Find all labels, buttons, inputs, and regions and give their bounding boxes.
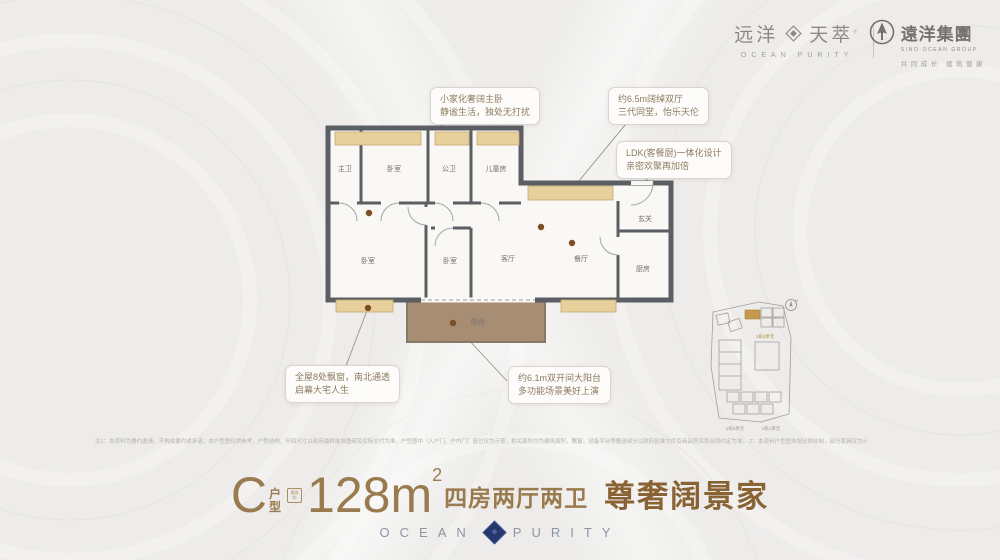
- room-label-foyer: 玄关: [638, 214, 652, 223]
- brand-ocean-purity: 远洋 天萃® OCEAN PURITY: [734, 20, 860, 59]
- keyplan-caption-1: 1栋2单元: [726, 425, 745, 432]
- registered-mark: ®: [853, 30, 860, 36]
- callout-ldk: LDK(客餐厨)一体化设计 亲密欢聚再加倍: [616, 141, 732, 179]
- sino-ocean-logo-icon: [868, 18, 896, 46]
- brand-left-en: OCEAN PURITY: [734, 52, 860, 59]
- brand-right-tagline: 共同成长 建筑健康: [901, 58, 986, 68]
- brand-left-zh-right: 天萃®: [809, 20, 860, 47]
- keyplan-unit-label: 1栋3单元: [756, 333, 775, 340]
- svg-text:N: N: [795, 298, 798, 303]
- brand-sino-ocean-group: 遠洋集團 SINO-OCEAN GROUP 共同成长 建筑健康: [868, 18, 986, 68]
- room-label-balcony: 阳台: [471, 317, 485, 326]
- area-badge: 建面 约: [287, 488, 302, 503]
- callout-double-hall: 约6.5m阔绰双厅 三代同堂，怡乐天伦: [608, 87, 709, 125]
- room-label-master-bath: 主卫: [338, 164, 352, 173]
- north-arrow-icon: N: [786, 298, 799, 311]
- unit-slogan: 尊奢阔景家: [604, 471, 769, 516]
- unit-type-label: 户 型: [269, 488, 281, 514]
- brand-left-zh-left: 远洋: [734, 20, 778, 47]
- site-keyplan: 1栋3单元 N 1栋2单元 1栋1单元: [703, 296, 799, 438]
- footer-watermark: OCEAN PURITY: [0, 524, 1000, 541]
- room-label-public-bath: 公卫: [442, 165, 456, 173]
- unit-rooms-text: 四房两厅两卫: [444, 479, 588, 513]
- unit-type-letter: C: [231, 473, 267, 517]
- brand-right-zh: 遠洋集團: [901, 20, 973, 45]
- watermark-diamond-icon: [482, 520, 506, 544]
- watermark-purity: PURITY: [513, 525, 621, 540]
- room-label-dining: 餐厅: [574, 254, 588, 263]
- unit-spec-headline: C 户 型 建面 约 128m2 四房两厅两卫 尊奢阔景家: [0, 471, 1000, 517]
- room-label-bedroom-left: 卧室: [361, 256, 375, 265]
- callout-master-bedroom: 小家化奢阔主卧 静谧生活，独处无打扰: [430, 87, 540, 125]
- disclaimer-text: 注1：本资料为要约邀请，不构成要约或承诺；本户型图仅供参考，户型结构、开间尺寸以…: [95, 436, 866, 445]
- poster-canvas: 远洋 天萃® OCEAN PURITY 遠洋集團 SINO-OCEAN GROU…: [0, 0, 1000, 560]
- diamond-logo-icon: [784, 24, 803, 43]
- room-label-living: 客厅: [501, 254, 515, 263]
- area-superscript: 2: [432, 465, 442, 485]
- room-label-kitchen: 厨房: [636, 264, 650, 273]
- keyplan-caption-2: 1栋1单元: [762, 425, 781, 432]
- room-label-bedroom-mid: 卧室: [443, 256, 457, 265]
- brand-right-en: SINO-OCEAN GROUP: [901, 47, 986, 53]
- callout-bay-windows: 全屋8处飘窗，南北通透 启幕大宅人生: [285, 365, 400, 403]
- unit-area: 128m2: [307, 473, 442, 517]
- callout-balcony: 约6.1m双开间大阳台 多功能场景美好上演: [508, 366, 611, 404]
- highlighted-unit: [745, 310, 760, 319]
- room-label-kids-room: 儿童房: [486, 164, 507, 173]
- room-label-bedroom-top: 卧室: [387, 164, 401, 173]
- watermark-ocean: OCEAN: [380, 525, 476, 540]
